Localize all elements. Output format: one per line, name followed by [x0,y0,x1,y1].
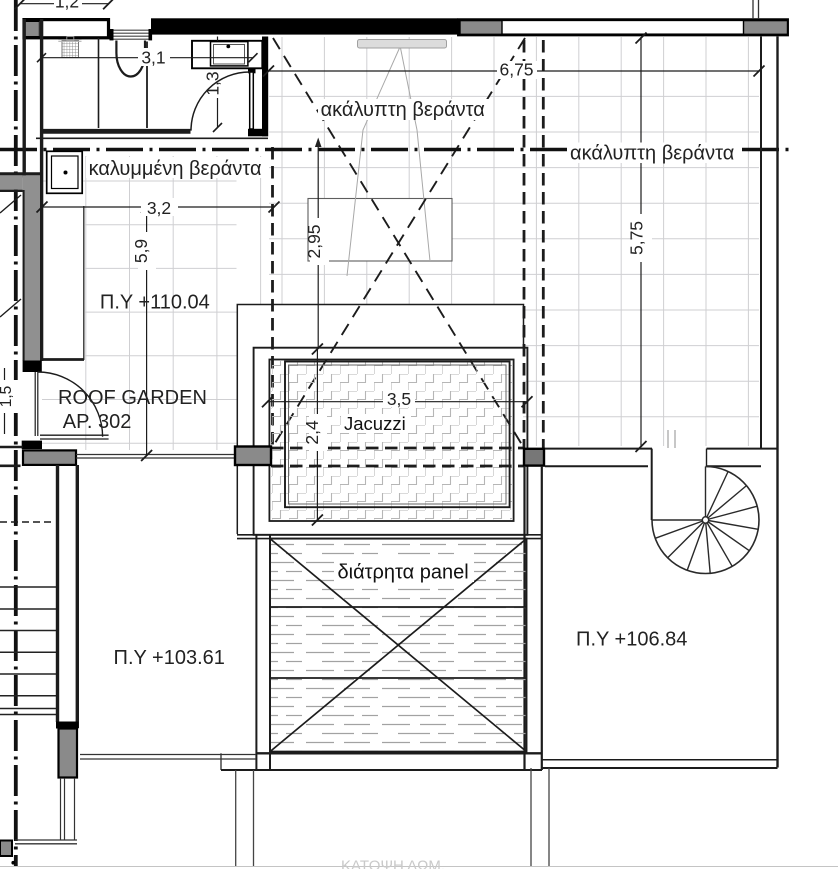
svg-text:1,2: 1,2 [55,0,79,12]
svg-text:3,5: 3,5 [387,389,411,409]
svg-text:6,75: 6,75 [499,60,533,80]
svg-text:2,95: 2,95 [304,224,324,258]
svg-text:1,3: 1,3 [203,71,223,95]
svg-text:ακάλυπτη βεράντα: ακάλυπτη βεράντα [321,99,485,121]
svg-text:5,75: 5,75 [627,221,647,255]
svg-text:2,4: 2,4 [302,420,322,445]
svg-text:Π.Y +106.84: Π.Y +106.84 [576,629,687,651]
svg-text:Jacuzzi: Jacuzzi [344,413,406,434]
svg-text:5,9: 5,9 [131,239,151,263]
svg-text:ΚΑΤΟΨΗ ΔΩΜ.: ΚΑΤΟΨΗ ΔΩΜ. [341,858,445,869]
svg-text:3,2: 3,2 [147,198,171,218]
svg-text:Π.Y +110.04: Π.Y +110.04 [100,292,210,314]
svg-text:διάτρητα panel: διάτρητα panel [338,562,469,584]
svg-text:3,1: 3,1 [141,48,165,68]
svg-text:ROOF GARDEN: ROOF GARDEN [58,387,207,409]
svg-text:AP. 302: AP. 302 [63,411,132,433]
svg-text:καλυμμένη βεράντα: καλυμμένη βεράντα [89,158,262,180]
svg-text:1,5: 1,5 [0,386,15,408]
svg-text:ακάλυπτη βεράντα: ακάλυπτη βεράντα [570,143,734,165]
svg-text:Π.Y +103.61: Π.Y +103.61 [114,647,225,669]
